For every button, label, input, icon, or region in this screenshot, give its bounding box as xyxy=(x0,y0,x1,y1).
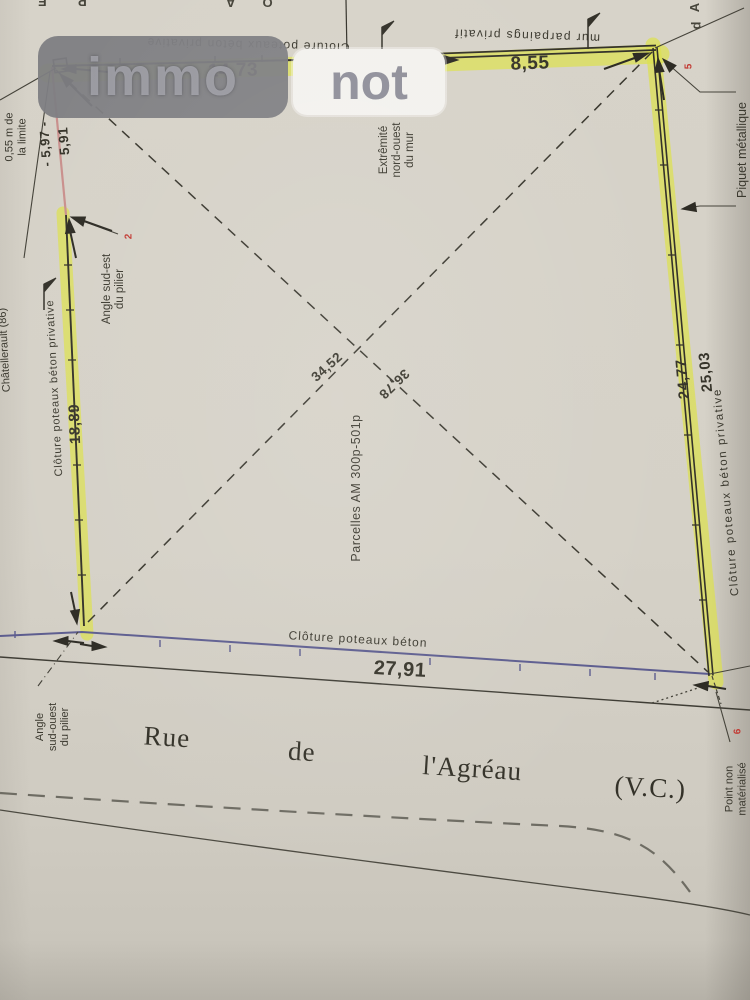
note-line: Extrêmité xyxy=(378,123,391,178)
right-edge-fragment: A xyxy=(687,3,702,12)
pillar-se-note: Angle sud-est du pilier xyxy=(101,254,127,324)
street-word: Rue xyxy=(143,720,191,754)
watermark-not-text: not xyxy=(330,53,408,111)
right-edge-fragment: d xyxy=(688,22,703,30)
point-marker-6: 6 xyxy=(732,729,743,735)
west-fence-length: 18,89 xyxy=(66,404,85,445)
watermark-immo-text: immo xyxy=(87,46,239,108)
south-fence-length: 27,91 xyxy=(373,657,427,683)
parcel-label: Parcelles AM 300p-501p xyxy=(349,414,363,561)
point-marker-5: 5 xyxy=(683,64,694,70)
note-line: Angle xyxy=(34,703,47,751)
street-word: de xyxy=(287,736,316,769)
note-line: sud-ouest xyxy=(47,703,60,751)
note-line: Angle sud-est xyxy=(101,254,114,324)
street-word: l'Agréau xyxy=(422,750,524,787)
offset-distance-591: 5,91 xyxy=(55,126,72,155)
leader-dotted xyxy=(652,688,698,703)
plan-drawing xyxy=(0,0,750,1000)
note-line: du pilier xyxy=(59,703,72,751)
point-marker-2: 2 xyxy=(123,234,134,240)
scanned-survey-plan: P E O A A d Clôture poteaux béton privat… xyxy=(0,0,750,1000)
east-fence-length-2477: 24,77 xyxy=(673,358,694,399)
east-fence-length-2503: 25,03 xyxy=(696,351,717,392)
street-word: (V.C.) xyxy=(614,770,687,805)
watermark-not: not xyxy=(293,49,445,115)
watermark-immo: immo xyxy=(38,36,288,118)
watermark: immo not xyxy=(0,0,460,130)
note-line: matérialisé xyxy=(736,762,749,815)
note-line: du pilier xyxy=(114,254,127,324)
note-line: du mur xyxy=(405,123,418,178)
wall-end-note: Extrêmité nord-ouest du mur xyxy=(378,123,418,178)
pillar-sw-note: Angle sud-ouest du pilier xyxy=(34,703,72,751)
note-line: nord-ouest xyxy=(391,123,404,178)
piquet-label: Piquet métallique xyxy=(735,102,749,198)
north-wall-length: 8,55 xyxy=(510,52,550,75)
